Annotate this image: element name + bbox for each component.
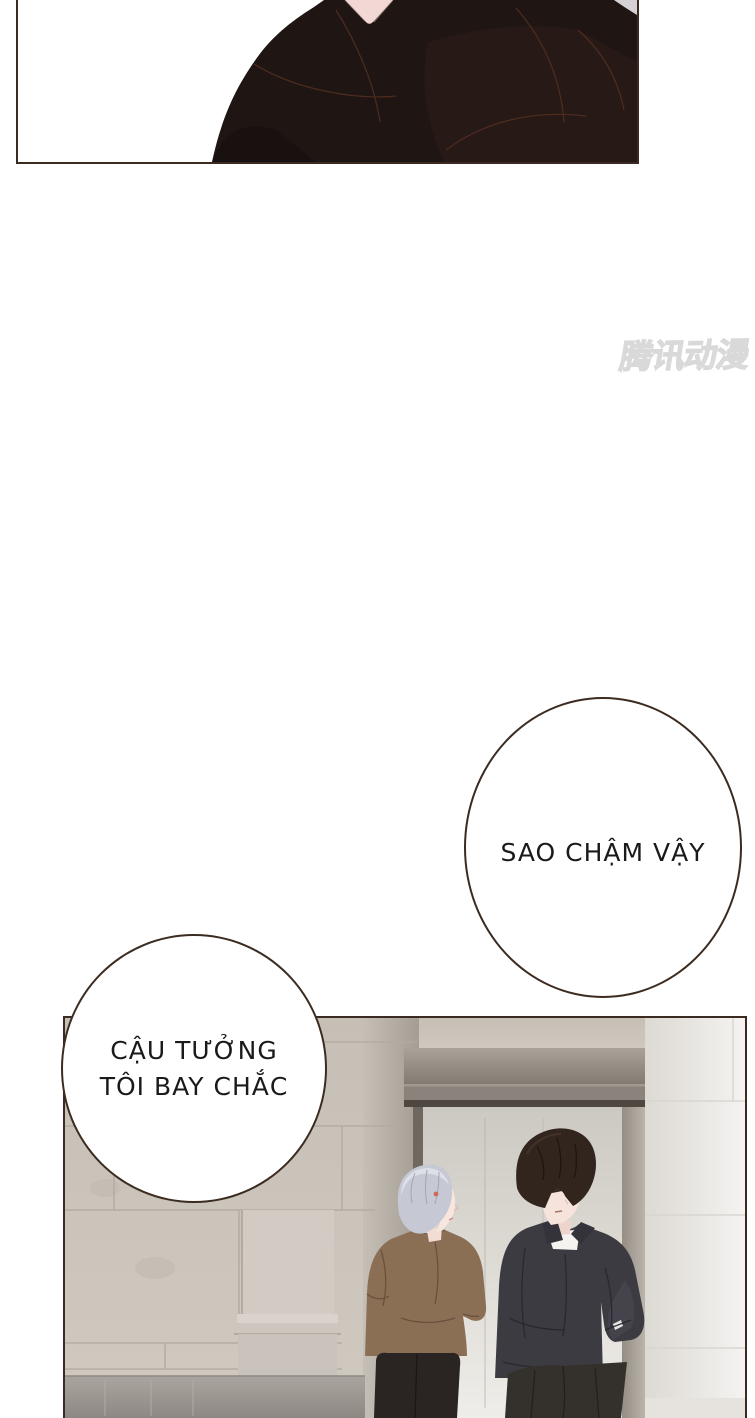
left-character-ear-accent [434,1192,439,1197]
marble-wall-right [645,1018,745,1418]
wall-above-door [404,1018,645,1052]
right-character-pants [505,1362,627,1418]
jacket-shade [424,26,637,162]
stone-pilaster [234,1210,341,1380]
speech-text: SAO CHẬM VẬY [501,835,706,871]
floor-right [645,1398,745,1418]
door-alcove-shadow [404,1048,645,1084]
comic-page: 腾讯动漫 SAO CHẬM VẬY [0,0,755,1418]
lintel-highlight [404,1084,645,1087]
speech-bubble-2: CẬU TƯỞNG TÔI BAY CHẮC [61,934,327,1203]
right-character-mouth [555,1211,562,1212]
speech-text-line2: TÔI BAY CHẮC [100,1069,289,1105]
floor-left [65,1376,365,1418]
speech-bubble-1: SAO CHẬM VẬY [464,697,742,998]
panel-top [16,0,639,164]
tencent-comics-watermark: 腾讯动漫 [616,332,755,384]
speech-text-line1: CẬU TƯỞNG [110,1033,277,1069]
lintel-underside [404,1100,645,1107]
dark-figure-illustration [18,0,637,162]
